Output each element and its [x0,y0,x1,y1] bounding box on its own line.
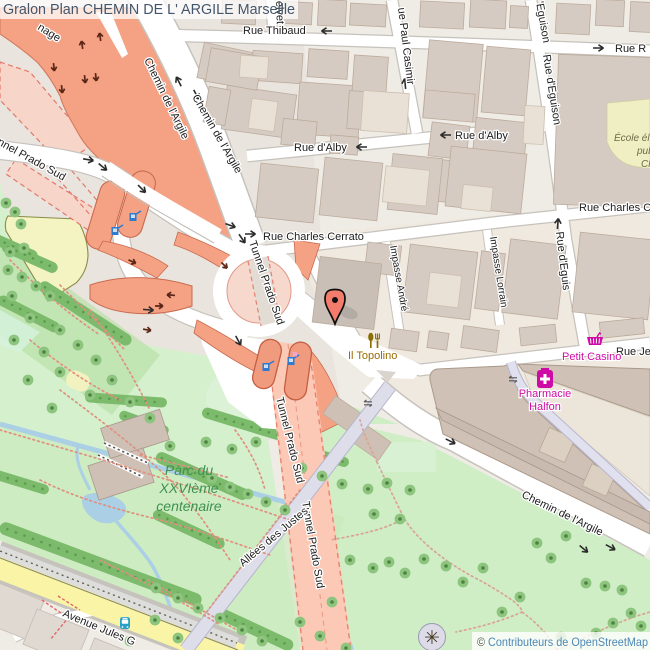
svg-text:Rue Charles C: Rue Charles C [579,202,650,214]
svg-text:XXVIème: XXVIème [158,480,218,496]
svg-text:pub: pub [636,146,650,157]
svg-text:centenaire: centenaire [156,498,222,514]
svg-text:Petit Casino: Petit Casino [562,351,621,363]
svg-text:Halfon: Halfon [529,401,561,413]
svg-text:Rue R: Rue R [615,43,646,55]
svg-text:✳: ✳ [424,628,440,649]
svg-text:École élém: École élém [614,131,650,144]
svg-text:Parc du: Parc du [165,462,213,478]
svg-text:Gralon Plan CHEMIN DE L' ARGIL: Gralon Plan CHEMIN DE L' ARGILE Marseill… [3,1,295,18]
svg-text:Rue Charles Cerrato: Rue Charles Cerrato [263,231,364,243]
svg-text:Rue d'Alby: Rue d'Alby [294,142,347,154]
svg-text:Cha: Cha [641,159,650,170]
svg-text:Il Topolino: Il Topolino [348,350,397,362]
svg-text:Rue d'Alby: Rue d'Alby [455,130,508,142]
svg-text:© Contributeurs de OpenStreetM: © Contributeurs de OpenStreetMap [477,635,648,649]
svg-text:Pharmacie: Pharmacie [519,388,572,400]
svg-text:Rue Thibaud: Rue Thibaud [243,25,306,37]
